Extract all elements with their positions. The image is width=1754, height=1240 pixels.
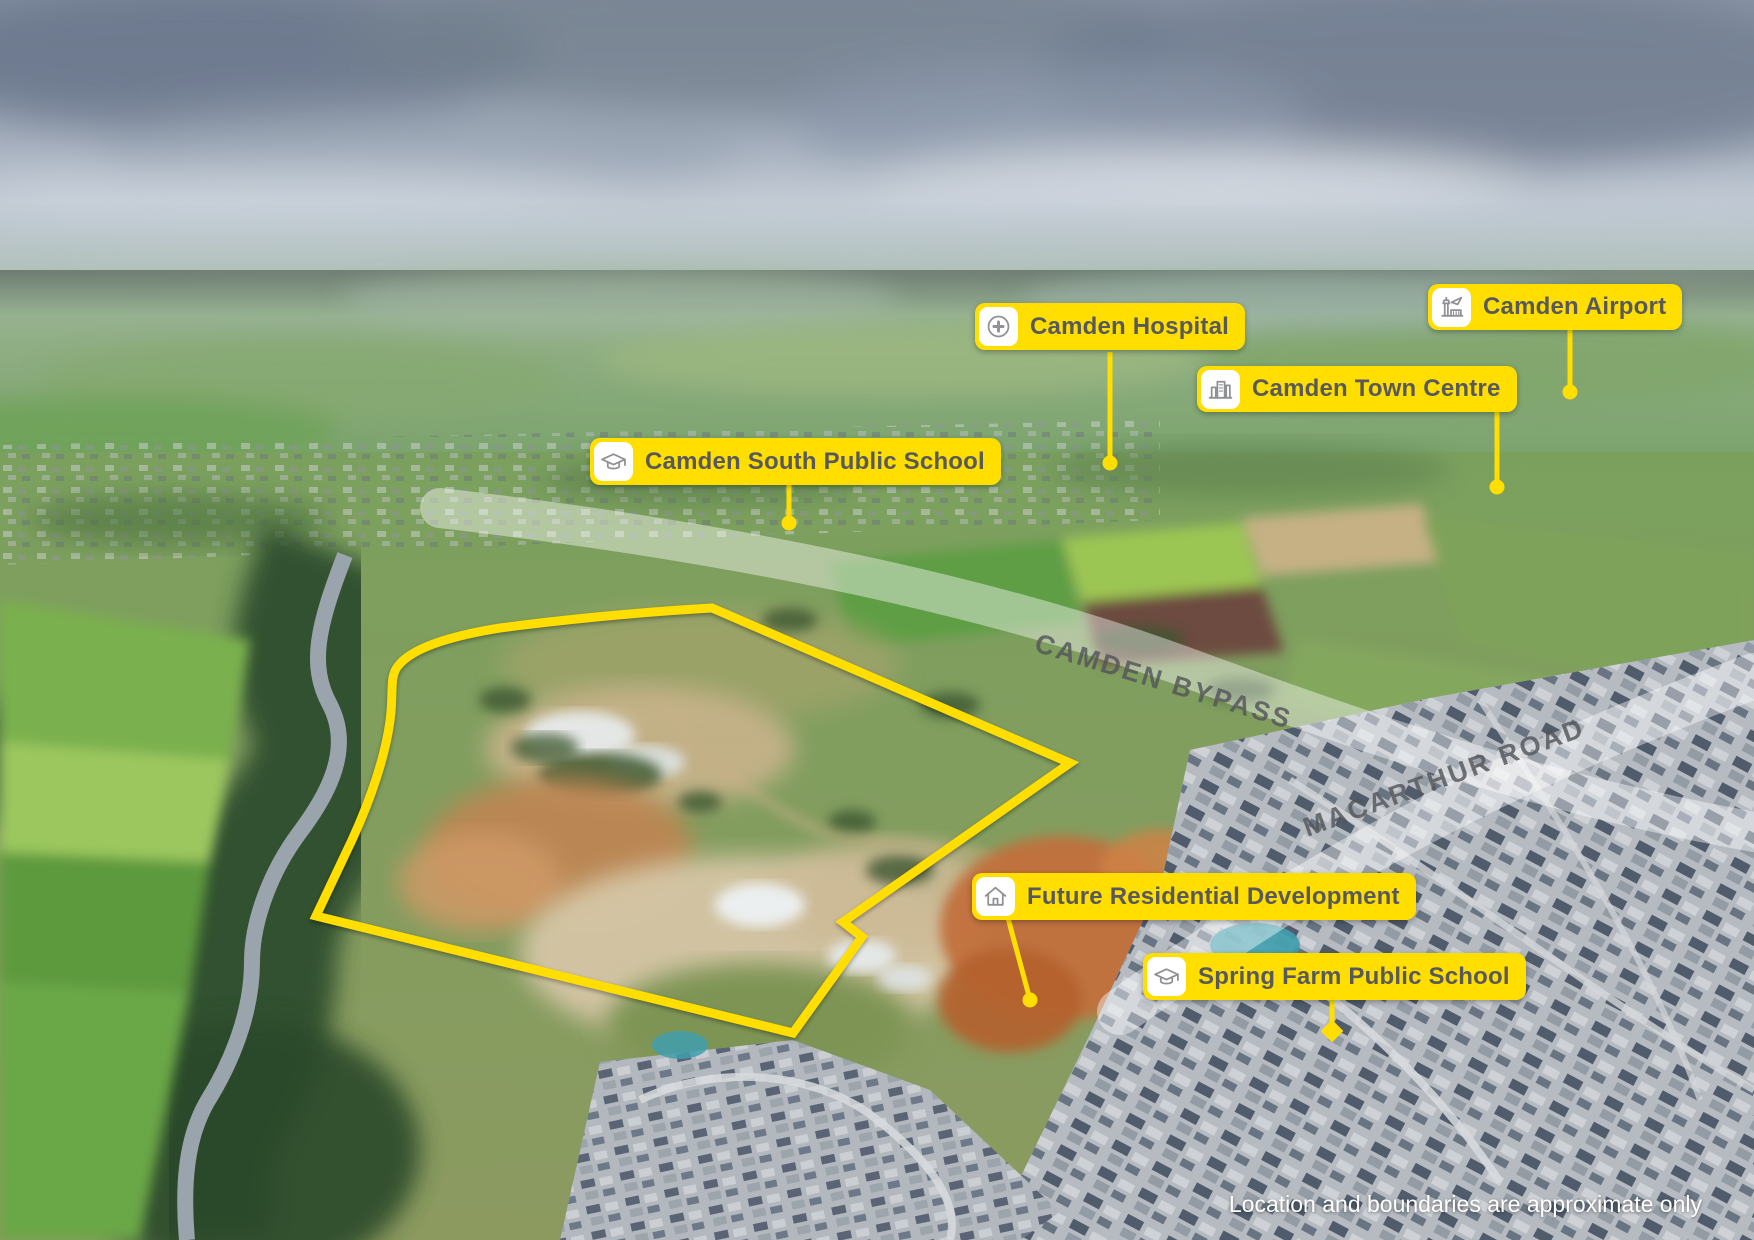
airport-icon — [1432, 288, 1471, 327]
label-camden-airport: Camden Airport — [1428, 284, 1682, 330]
aerial-site-map: CAMDEN BYPASS MACARTHUR ROAD Camden Hosp… — [0, 0, 1754, 1240]
graduation-cap-icon — [1147, 957, 1186, 996]
label-text: Camden Hospital — [1030, 313, 1229, 341]
label-camden-town-centre: Camden Town Centre — [1197, 366, 1517, 412]
label-text: Spring Farm Public School — [1198, 963, 1510, 991]
label-spring-farm-public-school: Spring Farm Public School — [1143, 953, 1526, 1000]
graduation-cap-icon — [594, 442, 633, 481]
label-text: Camden Airport — [1483, 293, 1666, 321]
town-buildings-icon — [1201, 370, 1240, 409]
label-future-residential-development: Future Residential Development — [972, 873, 1416, 920]
label-text: Future Residential Development — [1027, 883, 1400, 911]
hospital-cross-icon — [979, 307, 1018, 346]
label-text: Camden Town Centre — [1252, 375, 1501, 403]
label-text: Camden South Public School — [645, 448, 985, 476]
aerial-photo-backdrop: CAMDEN BYPASS MACARTHUR ROAD — [0, 0, 1754, 1240]
house-icon — [976, 877, 1015, 916]
boundaries-disclaimer: Location and boundaries are approximate … — [1229, 1191, 1702, 1218]
label-camden-hospital: Camden Hospital — [975, 303, 1245, 350]
label-camden-south-public-school: Camden South Public School — [590, 438, 1001, 485]
